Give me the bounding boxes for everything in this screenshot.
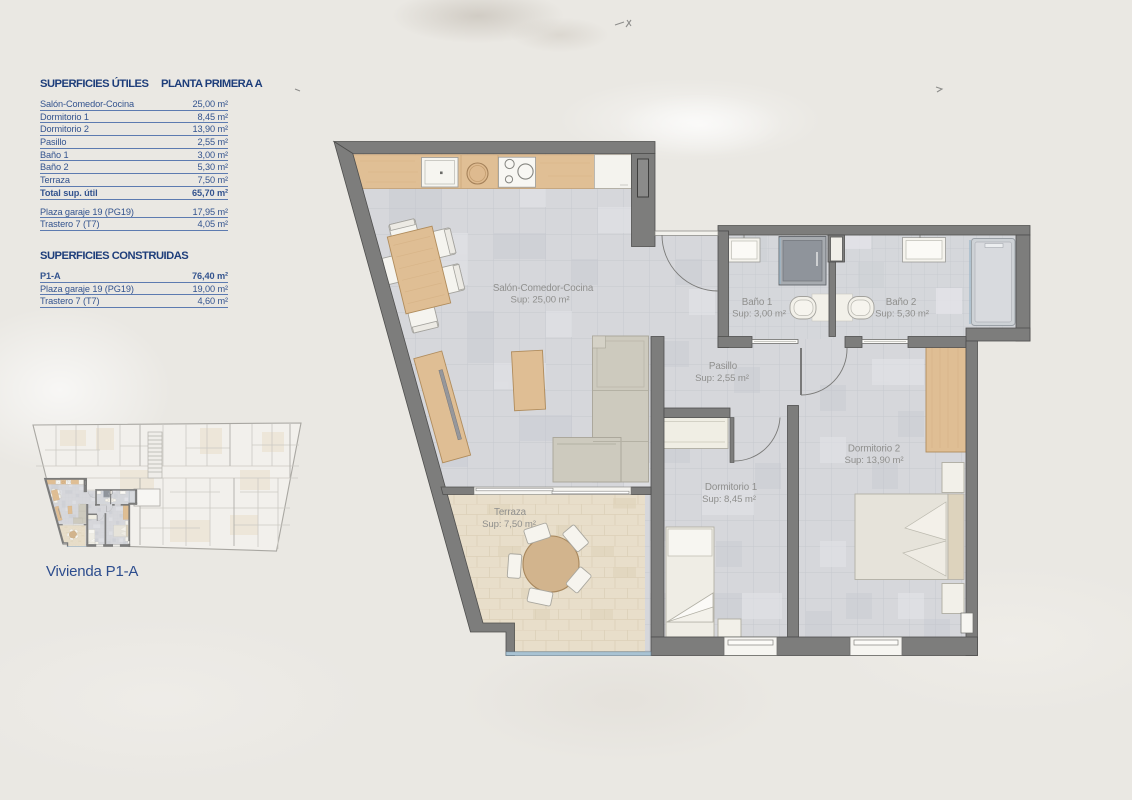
svg-text:Sup: 8,45 m²: Sup: 8,45 m²	[702, 494, 757, 505]
svg-text:Sup: 2,55 m²: Sup: 2,55 m²	[695, 373, 750, 384]
svg-text:Baño 2: Baño 2	[886, 297, 916, 308]
svg-text:Terraza: Terraza	[494, 507, 527, 518]
svg-text:Salón-Comedor-Cocina: Salón-Comedor-Cocina	[493, 283, 594, 294]
svg-text:Sup: 7,50 m²: Sup: 7,50 m²	[482, 519, 537, 530]
svg-text:Sup: 25,00 m²: Sup: 25,00 m²	[511, 295, 571, 306]
svg-text:Sup: 13,90 m²: Sup: 13,90 m²	[845, 455, 905, 466]
svg-text:Dormitorio 1: Dormitorio 1	[705, 482, 757, 493]
svg-text:Dormitorio 2: Dormitorio 2	[848, 444, 900, 455]
svg-text:Pasillo: Pasillo	[709, 361, 738, 372]
svg-text:Sup: 3,00 m²: Sup: 3,00 m²	[732, 309, 787, 320]
svg-text:Sup: 5,30 m²: Sup: 5,30 m²	[875, 309, 930, 320]
svg-text:Baño 1: Baño 1	[742, 297, 772, 308]
